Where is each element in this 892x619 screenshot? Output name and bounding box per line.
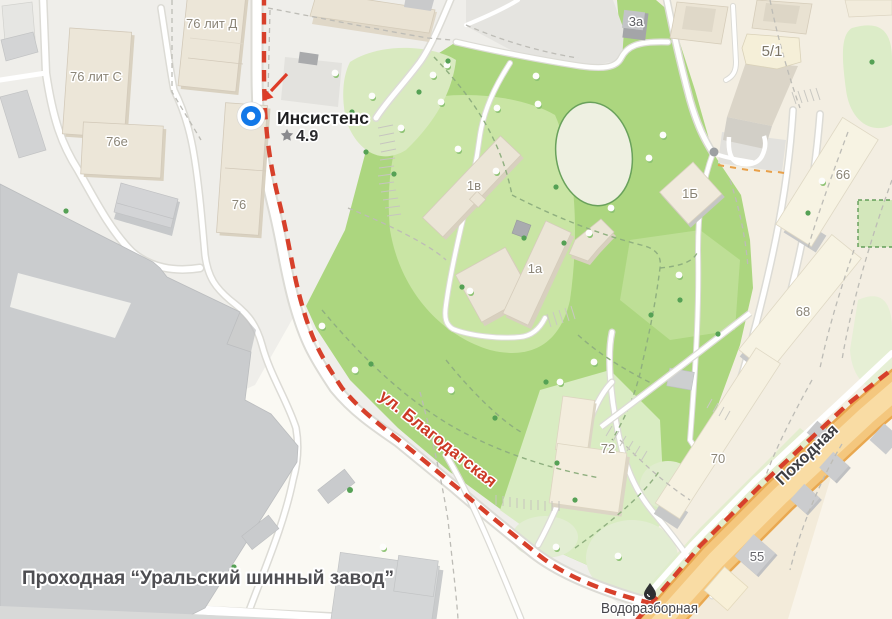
svg-text:68: 68 (796, 304, 810, 319)
svg-text:1а: 1а (528, 261, 543, 276)
svg-text:1Б: 1Б (682, 186, 698, 201)
svg-text:3а: 3а (629, 14, 644, 29)
svg-text:76е: 76е (106, 134, 128, 149)
svg-text:72: 72 (601, 441, 615, 456)
svg-text:70: 70 (711, 451, 725, 466)
svg-text:76 лит Д: 76 лит Д (186, 16, 237, 31)
svg-text:5/1: 5/1 (762, 43, 783, 60)
svg-text:66: 66 (836, 167, 850, 182)
svg-text:Проходная “Уральский шинный за: Проходная “Уральский шинный завод” (22, 567, 394, 589)
svg-text:76 лит С: 76 лит С (70, 69, 122, 84)
svg-text:76: 76 (232, 197, 246, 212)
svg-text:55: 55 (750, 549, 764, 564)
svg-text:Инсистенс: Инсистенс (277, 108, 369, 128)
svg-text:4.9: 4.9 (296, 128, 318, 145)
svg-text:Водоразборная: Водоразборная (601, 601, 698, 617)
svg-text:1в: 1в (467, 178, 481, 193)
